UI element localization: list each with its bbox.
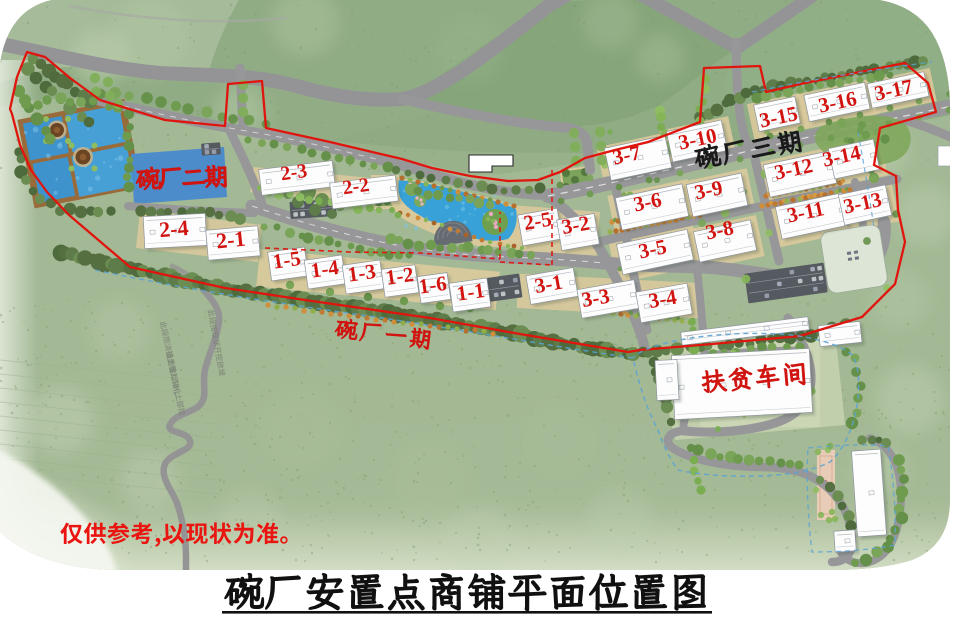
svg-text:2-4: 2-4 [158, 215, 189, 242]
svg-text:1-5: 1-5 [271, 246, 302, 274]
svg-text:1-3: 1-3 [346, 259, 377, 287]
svg-text:2-3: 2-3 [279, 160, 308, 185]
svg-text:1-6: 1-6 [417, 271, 448, 299]
svg-text:1-1: 1-1 [455, 278, 486, 306]
svg-text:3-2: 3-2 [560, 211, 592, 239]
svg-text:2-2: 2-2 [341, 174, 370, 199]
svg-text:1-2: 1-2 [384, 262, 415, 290]
svg-text:3-3: 3-3 [580, 284, 612, 312]
svg-text:3-1: 3-1 [533, 270, 565, 298]
svg-text:2-5: 2-5 [522, 207, 554, 235]
svg-text:2-1: 2-1 [215, 226, 247, 254]
svg-text:1-4: 1-4 [309, 255, 341, 283]
svg-text:3-4: 3-4 [647, 285, 679, 314]
